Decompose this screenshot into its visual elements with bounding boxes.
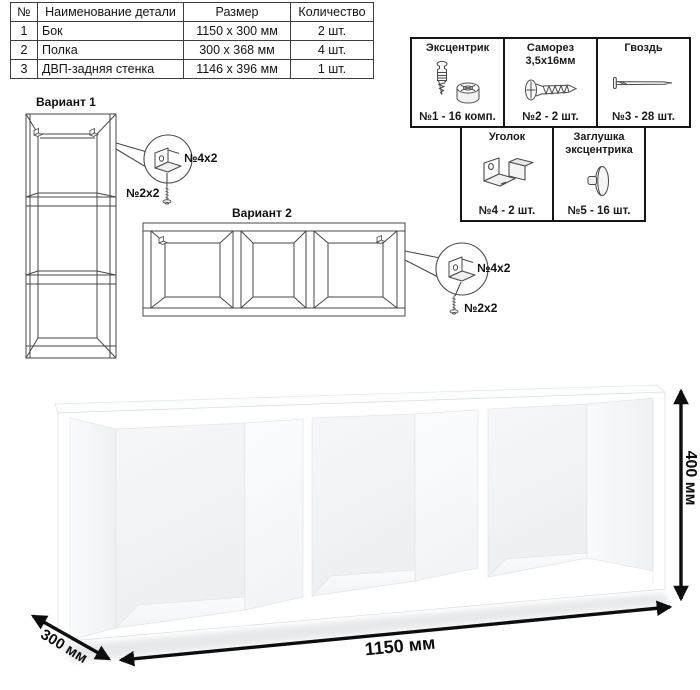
table-row: 2 Полка 300 x 368 мм 4 шт. [11, 41, 374, 60]
screw-icon [163, 186, 171, 205]
table-row: 3 ДВП-задняя стенка 1146 x 396 мм 1 шт. [11, 60, 374, 79]
nail-icon [598, 55, 689, 111]
hardware-item-screw: Саморез 3,5х16мм №2 - 2 шт. [503, 37, 598, 128]
col-header-size: Размер [184, 3, 291, 22]
variant2-title: Вариант 2 [232, 206, 292, 220]
cam-bolt-and-housing-icon [412, 55, 503, 111]
hardware-count: №3 - 28 шт. [612, 111, 675, 123]
hardware-title: Саморез 3,5х16мм [526, 42, 576, 68]
variant2-wireframe [143, 223, 405, 316]
height-dimension-label: 400 мм [681, 438, 699, 518]
part-size: 300 x 368 мм [184, 41, 291, 60]
part-name: ДВП-задняя стенка [38, 60, 184, 79]
hardware-count: №5 - 16 шт. [568, 205, 631, 217]
hardware-item-eccentric-cam: Эксцентрик №1 - 16 комп. [410, 37, 505, 128]
hardware-count: №1 - 16 комп. [419, 111, 496, 123]
hardware-title: Эксцентрик [426, 42, 489, 55]
shelf-3d-render [55, 385, 670, 662]
part-number: 1 [11, 22, 38, 41]
hardware-count: №2 - 2 шт. [522, 111, 578, 123]
hardware-count: №4 - 2 шт. [479, 205, 535, 217]
variant2-screw-label: №2х2 [464, 301, 497, 315]
screw-icon [450, 296, 458, 315]
hardware-item-cam-cap: Заглушка эксцентрика №5 - 16 шт. [552, 126, 646, 222]
part-number: 2 [11, 41, 38, 60]
col-header-qty: Количество [291, 3, 374, 22]
part-qty: 4 шт. [291, 41, 374, 60]
cam-cap-icon [554, 157, 644, 205]
hardware-item-nail: Гвоздь №3 - 28 шт. [596, 37, 691, 128]
wood-screw-icon [505, 68, 596, 111]
part-qty: 1 шт. [291, 60, 374, 79]
parts-table: № Наименование детали Размер Количество … [10, 2, 374, 79]
assembly-instruction-sheet: № Наименование детали Размер Количество … [0, 0, 700, 690]
hardware-title: Гвоздь [624, 42, 662, 55]
part-name: Бок [38, 22, 184, 41]
col-header-name: Наименование детали [38, 3, 184, 22]
part-size: 1150 x 300 мм [184, 22, 291, 41]
corner-bracket-icon [462, 144, 552, 205]
col-header-number: № [11, 3, 38, 22]
variant2-bracket-label: №4х2 [477, 261, 510, 275]
hardware-title: Заглушка эксцентрика [565, 131, 633, 157]
variant1-bracket-label: №4х2 [184, 151, 217, 165]
variant1-screw-label: №2х2 [126, 186, 159, 200]
part-size: 1146 x 396 мм [184, 60, 291, 79]
hardware-item-corner-bracket: Уголок №4 - 2 шт. [460, 126, 554, 222]
variant1-title: Вариант 1 [36, 95, 96, 109]
table-row: 1 Бок 1150 x 300 мм 2 шт. [11, 22, 374, 41]
variant1-wireframe [26, 114, 116, 358]
hardware-title: Уголок [489, 131, 525, 144]
table-header-row: № Наименование детали Размер Количество [11, 3, 374, 22]
part-number: 3 [11, 60, 38, 79]
part-name: Полка [38, 41, 184, 60]
part-qty: 2 шт. [291, 22, 374, 41]
